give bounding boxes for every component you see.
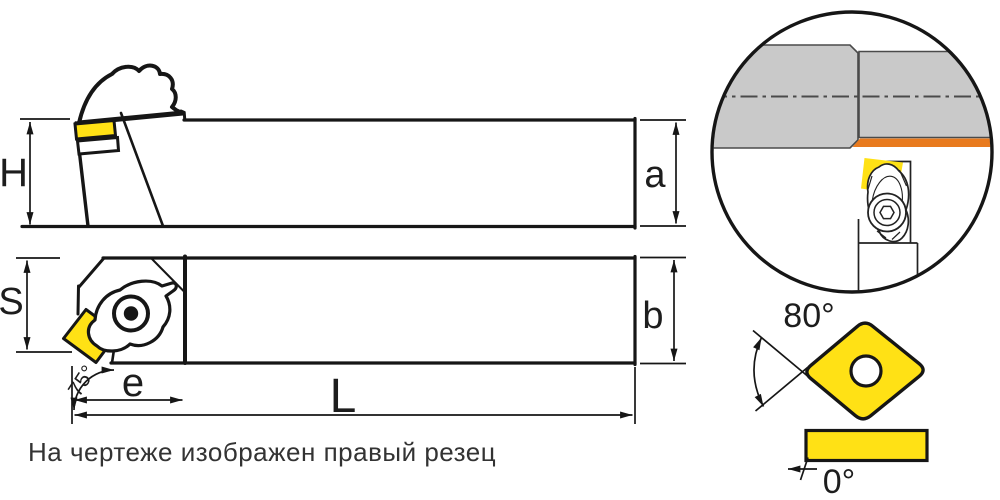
dim-b-label: b xyxy=(642,295,663,337)
caption: На чертеже изображен правый резец xyxy=(28,437,496,467)
clearance-angle-label: 0° xyxy=(823,463,856,500)
dim-e-label: e xyxy=(122,361,144,405)
nose-angle-extension-1 xyxy=(753,331,808,377)
lead-angle-label: 75° xyxy=(64,362,101,401)
side-view-head-back-slant xyxy=(121,113,163,226)
workpiece-turned-section xyxy=(859,52,996,138)
detail-view xyxy=(705,12,996,300)
side-view: H a xyxy=(0,66,686,228)
insert-side-shape xyxy=(806,431,927,461)
dim-a-label: a xyxy=(644,154,666,196)
dim-L-label: L xyxy=(330,370,357,423)
nose-angle-label: 80° xyxy=(783,297,834,335)
plan-view-clamp-screw-center xyxy=(124,306,138,320)
insert-hole xyxy=(851,356,881,386)
insert-geometry-view: 80° 0° xyxy=(753,297,927,500)
plan-view: S b e L 75° xyxy=(0,257,686,425)
plan-view-head-left-edge xyxy=(78,286,79,314)
nose-angle-arc xyxy=(754,338,764,407)
dim-H-label: H xyxy=(0,151,28,195)
side-view-shim xyxy=(78,138,119,155)
dim-S-label: S xyxy=(0,281,24,323)
detail-screw-torx-socket xyxy=(880,206,894,218)
technical-drawing: H a S b e L 75° xyxy=(0,0,1000,500)
machined-surface-strip xyxy=(853,139,997,148)
side-view-insert xyxy=(75,121,116,140)
tool-drawing-page: H a S b e L 75° xyxy=(0,0,1000,500)
plan-view-head-chamfer xyxy=(79,258,104,287)
